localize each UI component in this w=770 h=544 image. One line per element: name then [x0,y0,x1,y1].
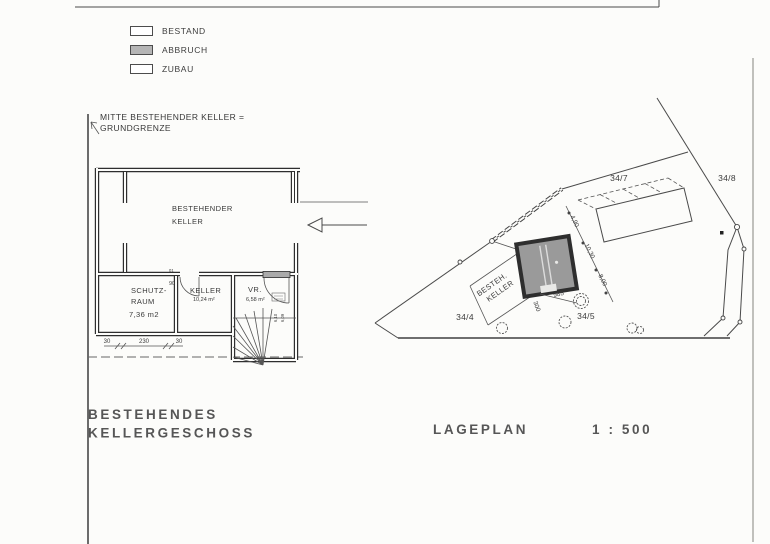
dim-right: 30 [176,339,183,345]
room-labels: BESTEHENDER KELLER SCHUTZ- RAUM 7,36 m2 … [129,204,285,322]
stair-note-2: 6,09 [280,313,285,322]
building-34-7 [578,178,692,242]
parcel-34-5: 34/5 [577,311,595,321]
vorraum-label: VR. [248,285,262,294]
scanned-plan-sheet: 30 230 30 BESTEHENDER KELLER SCHUTZ- RAU… [0,0,770,544]
note-leader-arrow [91,122,99,134]
main-room-label-2: KELLER [172,217,203,226]
direction-arrow [308,218,367,232]
vorraum-area: 6,58 m² [246,297,265,303]
parcel-34-7: 34/7 [610,173,628,183]
floor-plan: 30 230 30 BESTEHENDER KELLER SCHUTZ- RAU… [88,168,368,365]
boundary-note-line2: GRUNDGRENZE [100,123,244,134]
demolition-building [516,236,577,297]
site-plan-scale: 1 : 500 [592,422,652,438]
legend-swatch-abbruch [130,45,153,55]
drawing-canvas: 30 230 30 BESTEHENDER KELLER SCHUTZ- RAU… [0,0,770,544]
stair-note-1: 6,10 [273,313,278,322]
site-dim-3: 8,00 [597,273,609,288]
vr-door [264,278,289,303]
schutzraum-area: 7,36 m2 [129,310,159,319]
legend: BESTAND ABBRUCH ZUBAU [130,21,208,78]
legend-swatch-zubau [130,64,153,74]
legend-label-zubau: ZUBAU [162,64,194,74]
legend-row-abbruch: ABBRUCH [130,40,208,59]
floor-plan-title-line2: KELLERGESCHOSS [88,424,255,443]
site-dim-5: 300 [531,300,541,313]
schutzraum-label-1: SCHUTZ- [131,286,167,295]
legend-swatch-bestand [130,26,153,36]
parcel-34-4: 34/4 [456,312,474,322]
main-room-label-1: BESTEHENDER [172,204,233,213]
boundary-note-line1: MITTE BESTEHENDER KELLER = [100,112,244,123]
door-tag: 01 [169,268,174,273]
floor-plan-title: BESTEHENDES KELLERGESCHOSS [88,405,255,442]
site-plan: 4,90 10,30 8,00 985 300 [375,98,746,338]
legend-label-bestand: BESTAND [162,26,206,36]
schutzraum-label-2: RAUM [131,297,155,306]
boundary-stone [720,231,724,235]
floor-plan-walls [96,168,300,360]
legend-label-abbruch: ABBRUCH [162,45,208,55]
besteh-keller-label: BESTEH. KELLER [475,270,516,306]
spiral-stair [233,308,296,365]
parcel-34-8: 34/8 [718,173,736,183]
floor-plan-title-line1: BESTEHENDES [88,405,255,424]
legend-row-bestand: BESTAND [130,21,208,40]
abbruch-wall-segment [263,271,290,277]
dimension-line: 30 230 30 [104,339,183,349]
site-plan-title: LAGEPLAN [433,422,528,438]
keller-label: KELLER [190,286,221,295]
site-dim-1: 4,90 [569,214,581,229]
door-width: 90 [169,281,175,287]
boundary-note: MITTE BESTEHENDER KELLER = GRUNDGRENZE [100,112,244,134]
dim-middle: 230 [139,339,150,345]
site-dim-2: 10,30 [583,243,596,261]
parcel-labels: 34/7 34/8 34/4 34/5 [456,173,736,322]
keller-area: 10,24 m² [193,297,215,303]
legend-row-zubau: ZUBAU [130,59,208,78]
bushes [497,294,644,334]
site-dim-4: 985 [553,290,565,299]
dim-left: 30 [104,339,111,345]
